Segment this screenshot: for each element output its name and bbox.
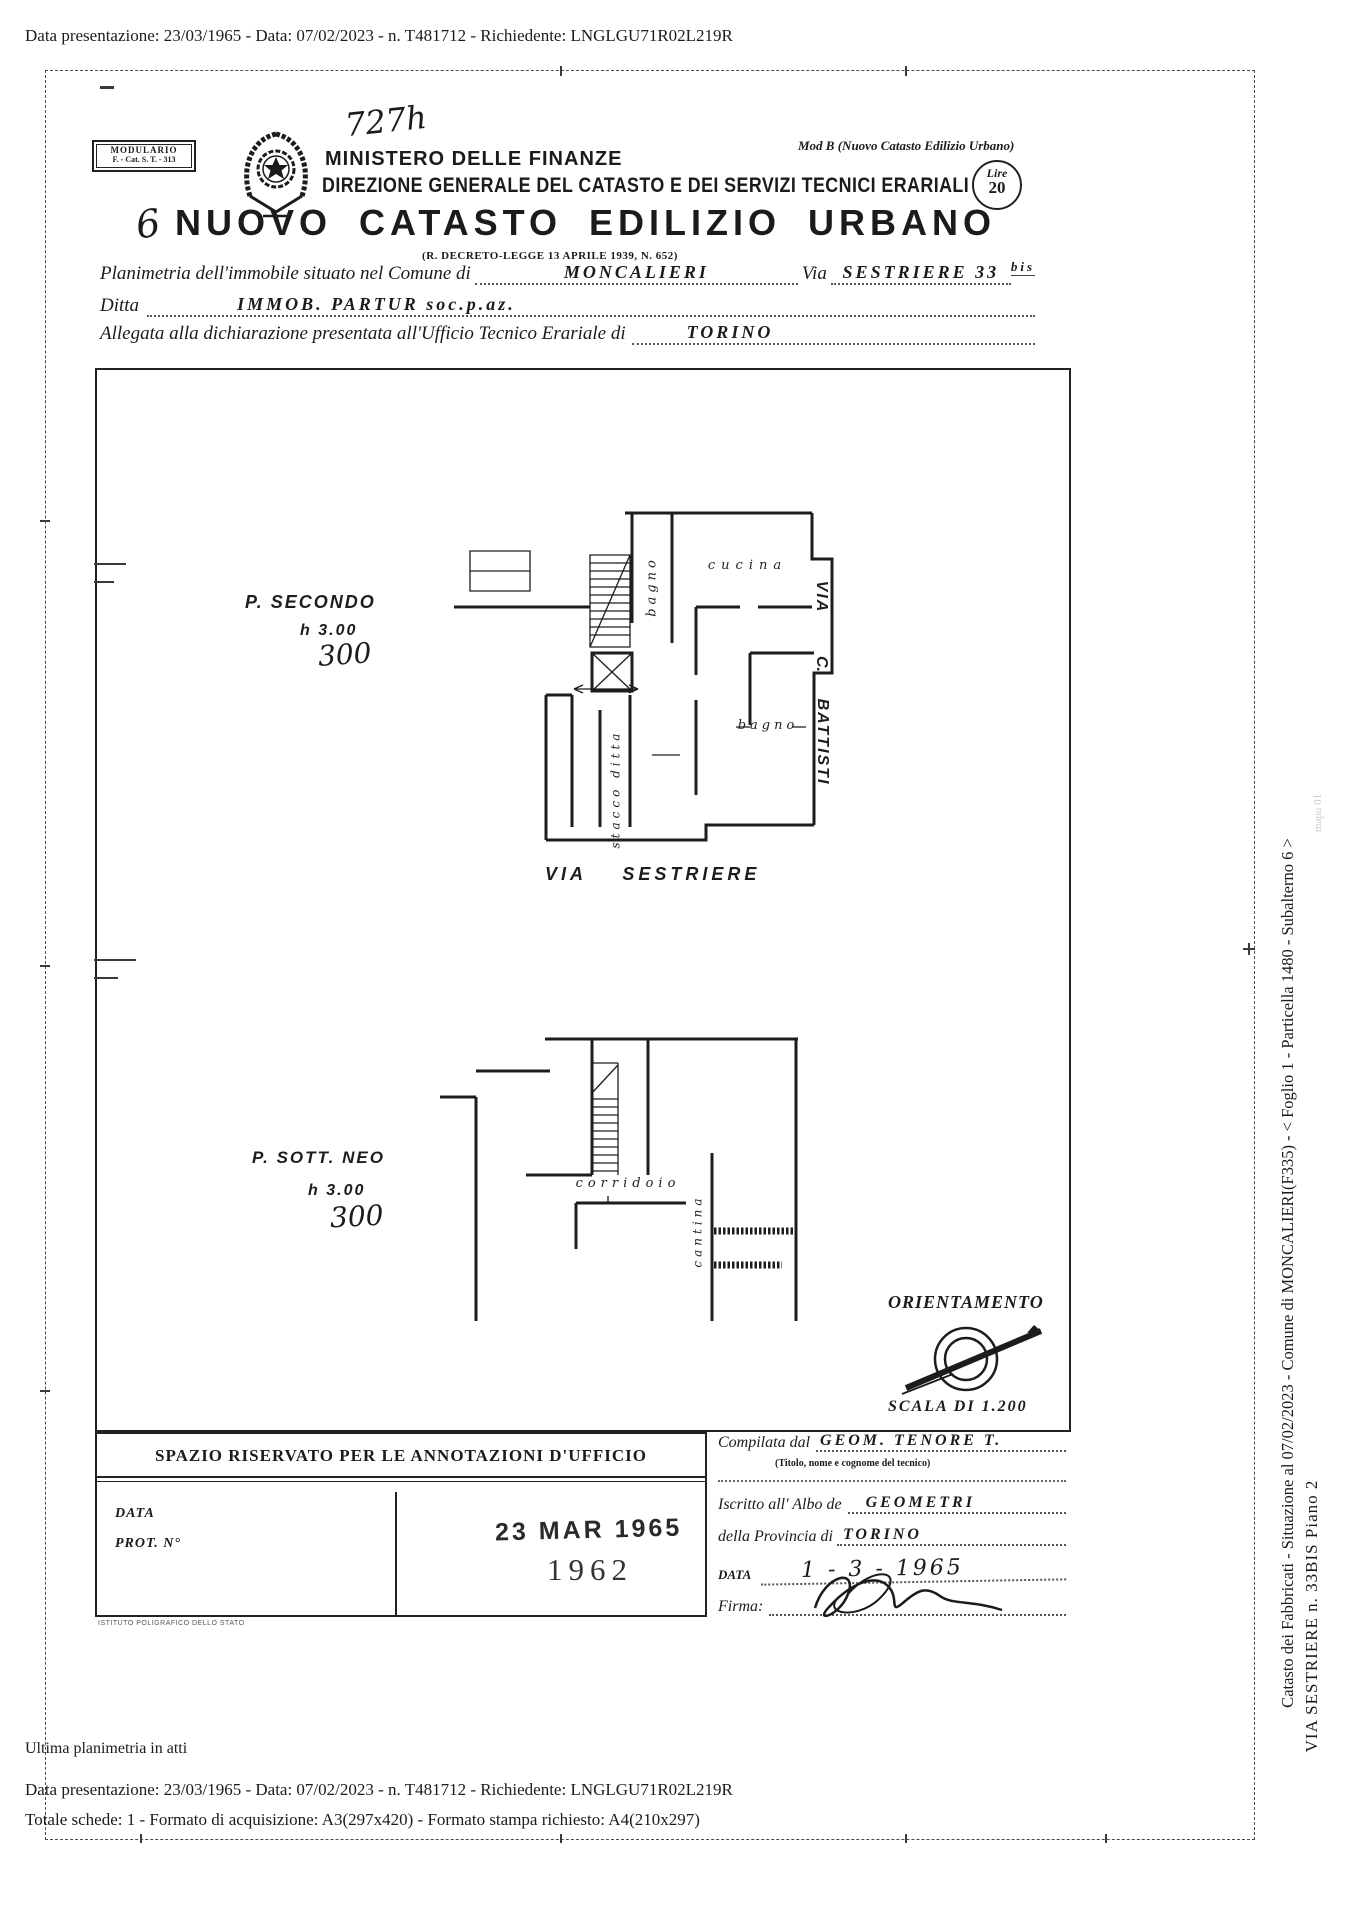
frame-tick xyxy=(40,965,50,967)
title-subtitle: (R. DECRETO-LEGGE 13 APRILE 1939, N. 652… xyxy=(330,250,770,262)
modulario-line1: MODULARIO xyxy=(94,145,194,155)
cell-divider xyxy=(395,1492,397,1616)
footer-ultima: Ultima planimetria in atti xyxy=(25,1740,187,1758)
footer-formats: Totale schede: 1 - Formato di acquisizio… xyxy=(25,1810,700,1830)
lire-value: 20 xyxy=(974,179,1020,197)
ditta-value: IMMOB. PARTUR soc.p.az. xyxy=(147,294,1035,317)
orientamento-label: ORIENTAMENTO xyxy=(888,1292,1044,1313)
via-value: SESTRIERE 33 xyxy=(831,262,1011,285)
floor2-label: P. SOTT. NEO xyxy=(252,1148,385,1168)
frame-tick xyxy=(140,1834,142,1843)
floor1-label: P. SECONDO xyxy=(245,592,376,613)
albo-value: GEOMETRI xyxy=(848,1494,1066,1514)
form-line-ditta: Ditta IMMOB. PARTUR soc.p.az. xyxy=(100,294,1035,317)
sidebar-faint-mark: mapu 01 xyxy=(1312,778,1324,848)
scale-label: SCALA DI 1.200 xyxy=(888,1398,1028,1416)
frame-tick xyxy=(905,66,907,76)
ministry-title: MINISTERO DELLE FINANZE xyxy=(325,148,622,171)
form-line-comune: Planimetria dell'immobile situato nel Co… xyxy=(100,262,1035,285)
prot-label: PROT. N° xyxy=(115,1536,181,1552)
plan-edge-mark xyxy=(94,581,114,583)
mod-b-note: Mod B (Nuovo Catasto Edilizio Urbano) xyxy=(798,138,1014,154)
comune-value: MONCALIERI xyxy=(475,262,798,285)
compilata-row: Compilata dal GEOM. TENORE T. xyxy=(718,1432,1066,1452)
room-label-corridoio: corridoio xyxy=(568,1176,688,1191)
room-label-bagno2: bagno xyxy=(733,718,803,733)
data-label2: DATA xyxy=(718,1567,751,1583)
albo-row: Iscritto all' Albo de GEOMETRI xyxy=(718,1494,1066,1514)
street-label-battisti: BATTISTI xyxy=(813,696,831,788)
stacco-ditta-label: stacco ditta xyxy=(609,734,623,849)
frame-tick xyxy=(905,1834,907,1843)
frame-tick xyxy=(1248,943,1250,955)
room-label-cucina: cucina xyxy=(700,558,795,573)
provincia-row: della Provincia di TORINO xyxy=(718,1526,1066,1546)
sidebar-cadastre-info: Catasto dei Fabbricati - Situazione al 0… xyxy=(1278,783,1298,1763)
plan-edge-mark xyxy=(94,563,126,565)
annotations-box: SPAZIO RISERVATO PER LE ANNOTAZIONI D'UF… xyxy=(95,1432,707,1617)
top-metadata-line: Data presentazione: 23/03/1965 - Data: 0… xyxy=(25,26,733,46)
floor1-handwritten-height: 300 xyxy=(317,636,373,673)
form-line-ufficio: Allegata alla dichiarazione presentata a… xyxy=(100,322,1035,345)
date-stamp: 23 MAR 1965 xyxy=(495,1514,683,1548)
provincia-value: TORINO xyxy=(837,1526,1066,1546)
room-label-cantina: cantina xyxy=(691,1184,705,1279)
firma-label: Firma: xyxy=(718,1598,763,1616)
plan-edge-mark xyxy=(94,959,136,961)
page-title: NUOVO CATASTO EDILIZIO URBANO xyxy=(175,202,996,244)
provincia-label: della Provincia di xyxy=(718,1528,833,1546)
year-stamp: 1962 xyxy=(547,1552,633,1588)
ufficio-value: TORINO xyxy=(632,322,1035,345)
floor2-height: h 3.00 xyxy=(308,1182,365,1200)
dotted-rule xyxy=(718,1480,1066,1482)
frame-tick xyxy=(40,520,50,522)
compilata-value: GEOM. TENORE T. xyxy=(816,1432,1066,1452)
printer-credit: ISTITUTO POLIGRAFICO DELLO STATO xyxy=(98,1620,245,1627)
compilata-label: Compilata dal xyxy=(718,1434,810,1452)
frame-tick xyxy=(560,66,562,76)
footer-metadata: Data presentazione: 23/03/1965 - Data: 0… xyxy=(25,1780,733,1800)
frame-tick xyxy=(1105,1834,1107,1843)
floor2-handwritten-height: 300 xyxy=(329,1199,384,1235)
street-label-c: C. xyxy=(812,651,830,677)
street-label-sestriere: VIA SESTRIERE xyxy=(545,864,760,885)
compass-icon xyxy=(898,1318,1053,1400)
frame-tick xyxy=(40,1390,50,1392)
ufficio-label: Allegata alla dichiarazione presentata a… xyxy=(100,323,626,345)
plan-edge-mark xyxy=(94,977,118,979)
compilata-subtext: (Titolo, nome e cognome del tecnico) xyxy=(775,1458,930,1469)
modulario-line2: F. - Cat. S. T. - 313 xyxy=(94,155,194,164)
via-value-sup: bis xyxy=(1011,259,1035,276)
annotations-title: SPAZIO RISERVATO PER LE ANNOTAZIONI D'UF… xyxy=(97,1434,705,1466)
signature xyxy=(790,1556,1020,1631)
ditta-label: Ditta xyxy=(100,295,139,317)
double-rule xyxy=(97,1476,705,1482)
modulario-box: MODULARIO F. - Cat. S. T. - 313 xyxy=(92,140,196,172)
stray-dash-mark xyxy=(100,86,114,89)
albo-label: Iscritto all' Albo de xyxy=(718,1496,842,1514)
room-label-bagno1: bagno xyxy=(645,552,660,622)
via-label: Via xyxy=(802,263,827,285)
street-label-via: VIA xyxy=(812,576,830,618)
data-label: DATA xyxy=(115,1506,155,1522)
scanned-cadastral-document: Data presentazione: 23/03/1965 - Data: 0… xyxy=(0,0,1357,1920)
frame-tick xyxy=(560,1834,562,1843)
direzione-title: DIREZIONE GENERALE DEL CATASTO E DEI SER… xyxy=(322,174,969,198)
sidebar-address-info: VIA SESTRIERE n. 33BIS Piano 2 xyxy=(1302,1466,1322,1766)
comune-label: Planimetria dell'immobile situato nel Co… xyxy=(100,263,471,285)
